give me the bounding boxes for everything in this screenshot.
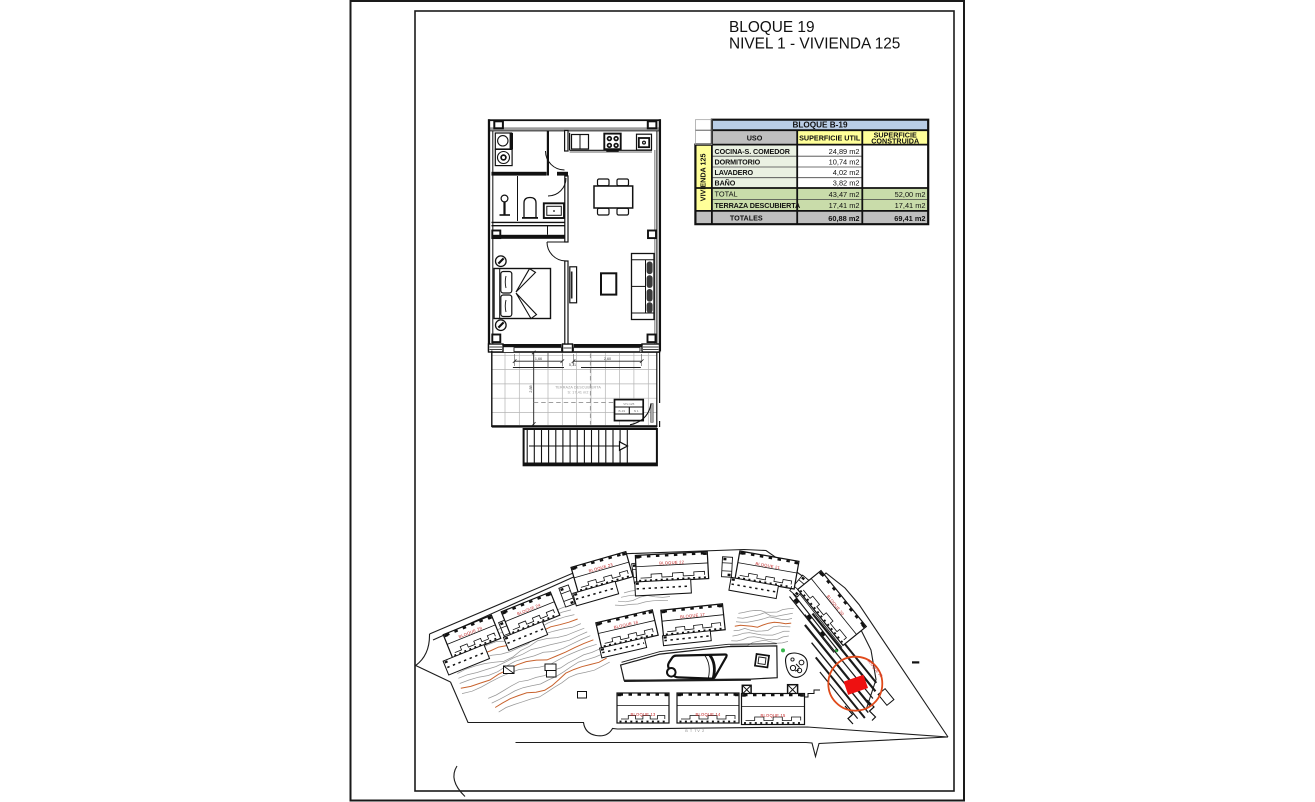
svg-text:USO: USO xyxy=(747,134,763,143)
svg-text:TOTALES: TOTALES xyxy=(730,214,763,223)
svg-text:DORMITORIO: DORMITORIO xyxy=(715,158,761,167)
svg-text:52,00 m2: 52,00 m2 xyxy=(895,190,926,199)
svg-text:VIVIENDA 125: VIVIENDA 125 xyxy=(699,154,708,202)
svg-text:BLOQUE B-19: BLOQUE B-19 xyxy=(792,121,847,130)
svg-text:5,71: 5,71 xyxy=(569,363,576,367)
svg-text:4,02 m2: 4,02 m2 xyxy=(833,168,860,177)
svg-text:LAVADERO: LAVADERO xyxy=(715,168,754,177)
svg-text:3,82 m2: 3,82 m2 xyxy=(833,179,860,188)
svg-text:BLOQUE 14: BLOQUE 14 xyxy=(695,712,720,717)
svg-text:CONSTRUIDA: CONSTRUIDA xyxy=(871,137,919,146)
svg-text:2,60: 2,60 xyxy=(604,357,611,361)
svg-text:TOTAL: TOTAL xyxy=(715,190,738,199)
svg-text:BLOQUE 19: BLOQUE 19 xyxy=(729,19,815,36)
svg-text:COCINA-S. COMEDOR: COCINA-S. COMEDOR xyxy=(715,147,791,156)
svg-text:17,41 m2: 17,41 m2 xyxy=(829,201,860,210)
svg-text:10,74 m2: 10,74 m2 xyxy=(829,158,860,167)
svg-text:B T TV 2: B T TV 2 xyxy=(685,729,705,733)
svg-text:43,47 m2: 43,47 m2 xyxy=(829,190,860,199)
svg-text:17,41 m2: 17,41 m2 xyxy=(895,201,926,210)
svg-text:69,41 m2: 69,41 m2 xyxy=(894,214,925,223)
svg-text:VIV-125: VIV-125 xyxy=(623,402,634,406)
svg-text:NIVEL 1 - VIVIENDA 125: NIVEL 1 - VIVIENDA 125 xyxy=(729,36,900,53)
svg-text:SUPERFICIE UTIL: SUPERFICIE UTIL xyxy=(799,134,861,143)
svg-text:B-19: B-19 xyxy=(619,409,626,413)
svg-text:BAÑO: BAÑO xyxy=(715,179,736,188)
svg-text:BLOQUE 13: BLOQUE 13 xyxy=(630,712,655,717)
svg-text:1,66: 1,66 xyxy=(535,357,542,361)
svg-text:S: 17,41 m2: S: 17,41 m2 xyxy=(568,391,589,395)
svg-text:24,89 m2: 24,89 m2 xyxy=(829,147,860,156)
svg-text:N 1: N 1 xyxy=(634,409,639,413)
svg-text:60,88 m2: 60,88 m2 xyxy=(828,214,859,223)
svg-text:2,88: 2,88 xyxy=(529,385,533,392)
svg-text:BLOQUE 15: BLOQUE 15 xyxy=(760,713,785,718)
svg-text:TERRAZA DESCUBIERTA: TERRAZA DESCUBIERTA xyxy=(555,386,601,390)
svg-text:TERRAZA DESCUBIERTA: TERRAZA DESCUBIERTA xyxy=(715,201,801,210)
